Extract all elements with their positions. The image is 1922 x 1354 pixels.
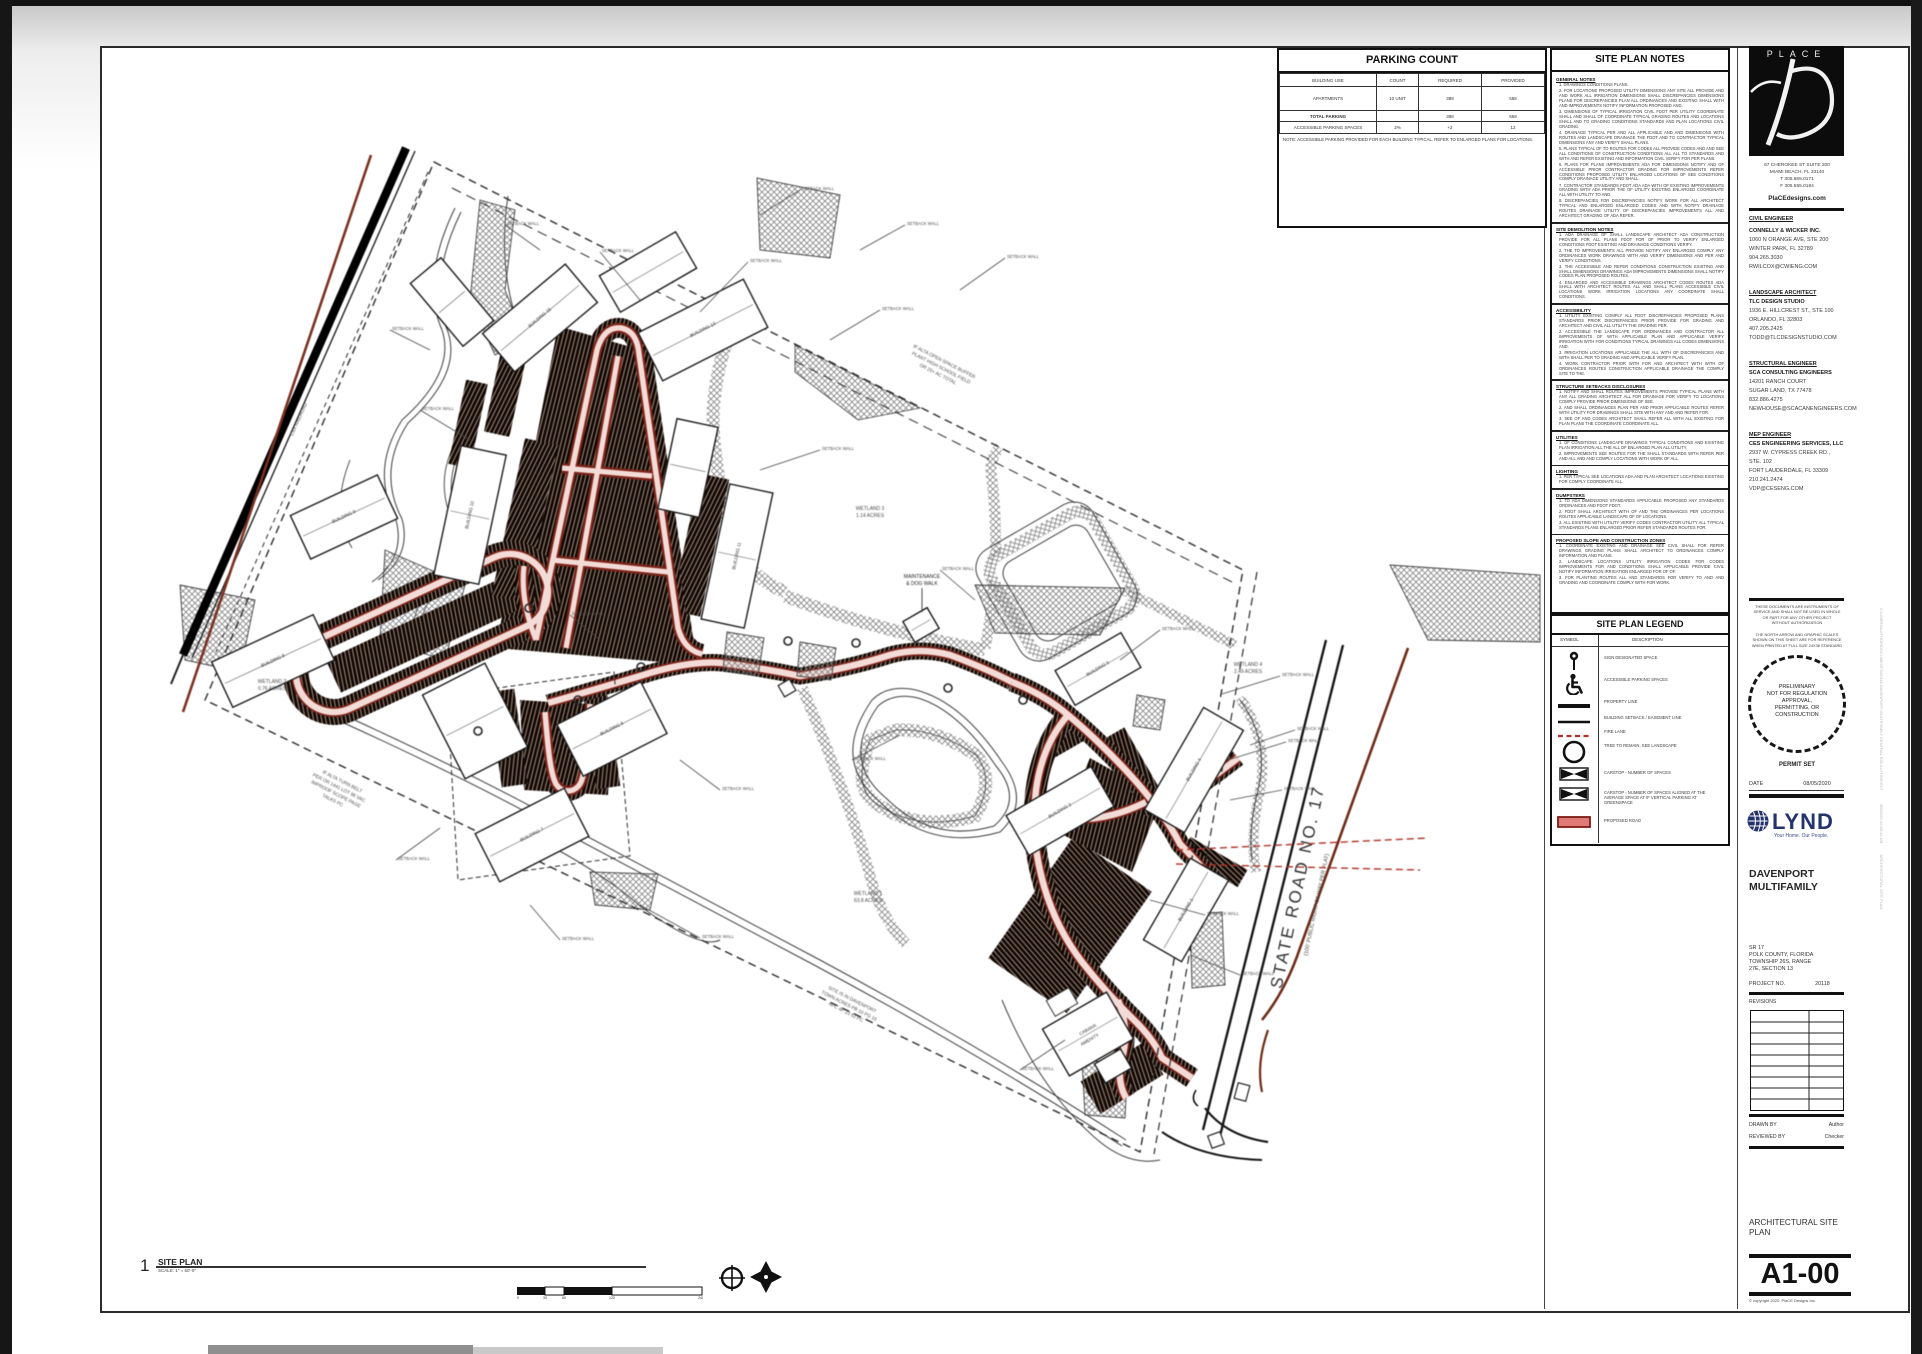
svg-text:60: 60: [562, 1296, 566, 1300]
svg-text:SETBACK WALL: SETBACK WALL: [1282, 672, 1315, 677]
svg-text:30: 30: [543, 1296, 547, 1300]
svg-text:SETBACK WALL: SETBACK WALL: [802, 186, 835, 191]
svg-text:SETBACK WALL: SETBACK WALL: [1207, 911, 1240, 916]
svg-text:SETBACK WALL: SETBACK WALL: [1162, 626, 1195, 631]
svg-text:0.76 ACRES: 0.76 ACRES: [258, 686, 287, 692]
svg-text:SETBACK WALL: SETBACK WALL: [392, 326, 425, 331]
svg-text:WETLAND 2: WETLAND 2: [258, 679, 287, 685]
svg-text:SETBACK WALL: SETBACK WALL: [572, 611, 605, 616]
svg-text:SETBACK WALL: SETBACK WALL: [822, 446, 855, 451]
svg-text:WETLAND 4: WETLAND 4: [1234, 662, 1263, 668]
svg-text:LYND: LYND: [1772, 809, 1834, 834]
svg-text:SETBACK WALL: SETBACK WALL: [1022, 1066, 1055, 1071]
svg-text:SETBACK WALL: SETBACK WALL: [882, 306, 915, 311]
svg-text:63.8 ACRES: 63.8 ACRES: [854, 898, 883, 904]
svg-text:WETLAND 1: WETLAND 1: [854, 891, 883, 897]
svg-text:2.49 ACRES: 2.49 ACRES: [1234, 669, 1263, 675]
svg-text:SETBACK WALL: SETBACK WALL: [1297, 726, 1330, 731]
svg-text:MAINTENANCE: MAINTENANCE: [904, 574, 941, 580]
svg-text:SETBACK WALL: SETBACK WALL: [1007, 254, 1040, 259]
svg-text:SETBACK WALL: SETBACK WALL: [854, 756, 887, 761]
svg-text:WETLAND 3: WETLAND 3: [856, 506, 885, 512]
svg-text:SETBACK WALL: SETBACK WALL: [942, 566, 975, 571]
svg-text:0: 0: [517, 1296, 519, 1300]
svg-text:SETBACK WALL: SETBACK WALL: [422, 406, 455, 411]
svg-text:& DOG WALK: & DOG WALK: [906, 581, 938, 587]
svg-text:SETBACK WALL: SETBACK WALL: [562, 936, 595, 941]
svg-text:1.14 ACRES: 1.14 ACRES: [856, 513, 885, 519]
svg-text:SETBACK WALL: SETBACK WALL: [1242, 971, 1275, 976]
svg-text:SETBACK WALL: SETBACK WALL: [907, 221, 940, 226]
svg-text:SETBACK WALL: SETBACK WALL: [702, 934, 735, 939]
svg-text:SETBACK WALL: SETBACK WALL: [507, 221, 540, 226]
svg-text:SETBACK WALL: SETBACK WALL: [1288, 738, 1321, 743]
svg-text:Your Home. Our People.: Your Home. Our People.: [1774, 833, 1828, 839]
svg-text:SETBACK WALL: SETBACK WALL: [722, 786, 755, 791]
svg-text:SETBACK WALL: SETBACK WALL: [398, 856, 431, 861]
svg-text:SETBACK WALL: SETBACK WALL: [1284, 786, 1317, 791]
svg-text:120: 120: [609, 1296, 615, 1300]
svg-text:SETBACK WALL: SETBACK WALL: [602, 248, 635, 253]
svg-text:SETBACK WALL: SETBACK WALL: [750, 258, 783, 263]
svg-text:240: 240: [698, 1296, 703, 1300]
